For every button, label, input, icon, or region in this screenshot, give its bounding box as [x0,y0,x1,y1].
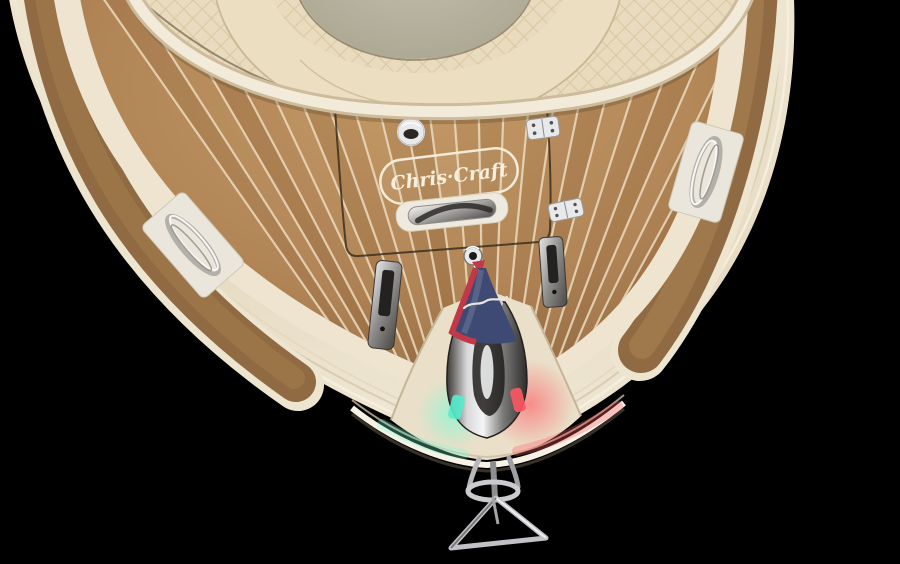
hinge-icon [526,116,560,140]
boat-photo-canvas: Chris·Craft [0,0,900,564]
boat-bow-photo: Chris·Craft [0,0,900,564]
side-latch-right [539,236,568,308]
latch-ring-icon [398,119,425,146]
